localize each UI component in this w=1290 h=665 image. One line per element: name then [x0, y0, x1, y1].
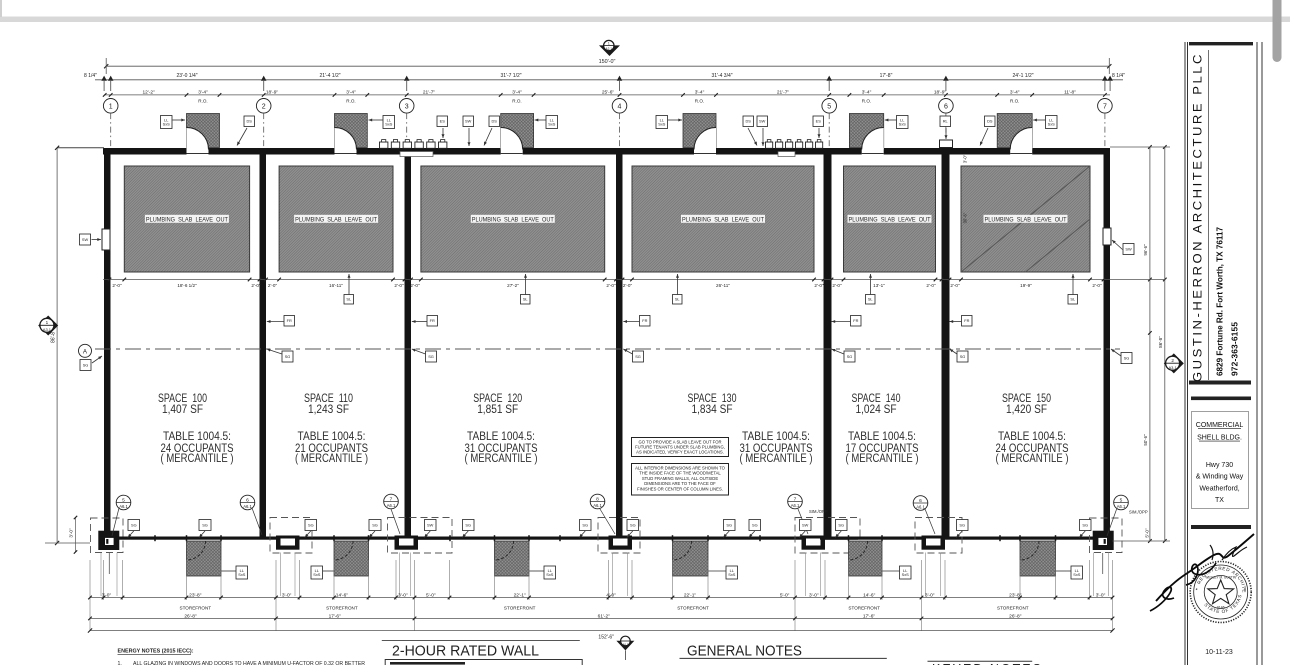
svg-text:FR: FR	[853, 318, 858, 323]
svg-text:SW: SW	[1125, 246, 1132, 251]
svg-text:ALL GLAZING IN WINDOWS AND DOO: ALL GLAZING IN WINDOWS AND DOORS TO HAVE…	[133, 661, 365, 665]
svg-text:3'-0": 3'-0"	[69, 528, 74, 538]
svg-text:DS: DS	[745, 119, 751, 124]
svg-text:R.O.: R.O.	[862, 99, 871, 104]
svg-text:2: 2	[262, 103, 266, 110]
svg-text:FR: FR	[964, 318, 969, 323]
svg-text:TX: TX	[1215, 497, 1224, 504]
svg-text:PLUMBING SLAB LEAVE OUT: PLUMBING SLAB LEAVE OUT	[472, 217, 554, 224]
svg-text:COMMERCIAL: COMMERCIAL	[1196, 422, 1244, 429]
svg-text:SW: SW	[759, 119, 766, 124]
svg-text:WESLEY M. GUSTIN: WESLEY M. GUSTIN	[1205, 576, 1236, 580]
svg-text:SW: SW	[82, 237, 89, 242]
svg-text:SL: SL	[675, 297, 681, 302]
svg-text:5'-0": 5'-0"	[780, 593, 790, 599]
svg-text:PLUMBING SLAB LEAVE OUT: PLUMBING SLAB LEAVE OUT	[682, 217, 764, 224]
svg-text:★: ★	[1243, 588, 1247, 591]
svg-text:11'-8": 11'-8"	[1064, 90, 1076, 96]
svg-text:3'-0": 3'-0"	[963, 154, 968, 163]
svg-text:10-11-23: 10-11-23	[1205, 649, 1233, 656]
svg-text:R.O.: R.O.	[1010, 99, 1019, 104]
svg-text:SL: SL	[523, 297, 529, 302]
svg-text:FR: FR	[642, 318, 647, 323]
svg-text:7: 7	[390, 496, 393, 502]
svg-text:8 1/4": 8 1/4"	[84, 73, 97, 79]
svg-text:GUSTIN-HERRON ARCHITECTURE P: GUSTIN-HERRON ARCHITECTURE PLLC	[1191, 52, 1205, 382]
svg-text:SG: SG	[465, 522, 471, 527]
svg-text:2'-0": 2'-0"	[814, 283, 824, 288]
svg-text:21'-4 1/2": 21'-4 1/2"	[319, 73, 340, 79]
svg-text:( MERCANTILE ): ( MERCANTILE )	[996, 451, 1069, 465]
svg-text:SxS: SxS	[238, 572, 246, 577]
svg-text:5'-0": 5'-0"	[426, 593, 436, 599]
svg-text:3'-4": 3'-4"	[512, 90, 522, 96]
svg-text:30'-6": 30'-6"	[963, 212, 968, 223]
svg-text:Weatherford,: Weatherford,	[1199, 486, 1239, 493]
svg-text:A2.1: A2.1	[606, 47, 613, 51]
svg-text:SxS: SxS	[385, 121, 393, 126]
svg-text:Hwy 730: Hwy 730	[1206, 462, 1233, 469]
svg-text:SG: SG	[83, 362, 89, 367]
svg-text:12'-2": 12'-2"	[142, 90, 155, 96]
svg-text:SG: SG	[635, 354, 641, 359]
svg-text:3'-4": 3'-4"	[695, 90, 705, 96]
svg-text:18'-6 1/2": 18'-6 1/2"	[177, 283, 197, 288]
svg-text:9146: 9146	[1217, 606, 1225, 610]
svg-text:SW: SW	[465, 119, 472, 124]
svg-text:6: 6	[944, 103, 948, 110]
svg-text:31'-4 3/4": 31'-4 3/4"	[711, 73, 732, 79]
svg-text:21'-7": 21'-7"	[423, 90, 436, 96]
svg-text:SG: SG	[959, 522, 965, 527]
svg-text:SxS: SxS	[899, 121, 907, 126]
svg-text:& Winding Way: & Winding Way	[1196, 474, 1244, 481]
svg-text:3'-4": 3'-4"	[198, 90, 208, 96]
svg-text:R.O.: R.O.	[346, 99, 355, 104]
svg-text:1,834 SF: 1,834 SF	[692, 402, 733, 416]
svg-text:2'-0": 2'-0"	[623, 283, 633, 288]
svg-text:SG: SG	[726, 522, 732, 527]
svg-text:( MERCANTILE ): ( MERCANTILE )	[465, 451, 538, 465]
svg-text:DS: DS	[246, 119, 252, 124]
svg-text:( MERCANTILE ): ( MERCANTILE )	[740, 451, 813, 465]
svg-text:27'-2": 27'-2"	[507, 283, 519, 288]
svg-text:A6.1: A6.1	[593, 503, 602, 508]
svg-text:1: 1	[46, 320, 49, 325]
svg-text:21'-7": 21'-7"	[777, 90, 790, 96]
svg-text:5: 5	[122, 497, 125, 503]
svg-text:DS: DS	[491, 119, 497, 124]
svg-text:22'-1": 22'-1"	[514, 593, 527, 599]
svg-text:STOREFRONT: STOREFRONT	[848, 606, 880, 611]
svg-text:6: 6	[919, 498, 922, 504]
svg-text:3'-4": 3'-4"	[346, 90, 356, 96]
svg-text:( MERCANTILE ): ( MERCANTILE )	[295, 451, 368, 465]
svg-text:SG: SG	[630, 522, 636, 527]
svg-text:2: 2	[1171, 358, 1174, 363]
svg-text:PLUMBING SLAB LEAVE OUT: PLUMBING SLAB LEAVE OUT	[985, 217, 1067, 224]
svg-text:A6.1: A6.1	[916, 504, 925, 509]
svg-text:A6.1: A6.1	[622, 642, 629, 646]
svg-text:FR: FR	[430, 318, 435, 323]
svg-text:SIM./OPP: SIM./OPP	[809, 509, 828, 514]
svg-text:4'-0": 4'-0"	[606, 593, 616, 599]
svg-text:18'-9": 18'-9"	[934, 90, 947, 96]
svg-text:A6.1: A6.1	[119, 504, 128, 509]
svg-text:14'-6": 14'-6"	[336, 593, 349, 599]
svg-text:A6.1: A6.1	[1117, 504, 1126, 509]
svg-text:★: ★	[1195, 587, 1199, 590]
svg-text:2'-0": 2'-0"	[268, 283, 278, 288]
svg-text:A6.1: A6.1	[243, 504, 252, 509]
svg-text:SG: SG	[752, 522, 758, 527]
svg-text:3'-4": 3'-4"	[1010, 90, 1020, 96]
svg-text:31'-7 1/2": 31'-7 1/2"	[500, 73, 521, 79]
svg-text:2'-0": 2'-0"	[251, 283, 261, 288]
svg-text:86'-8": 86'-8"	[1158, 336, 1163, 348]
svg-text:2'-0": 2'-0"	[950, 283, 960, 288]
svg-text:A6.1: A6.1	[791, 503, 800, 508]
svg-text:STOREFRONT: STOREFRONT	[180, 606, 212, 611]
svg-text:22'-1": 22'-1"	[684, 593, 697, 599]
svg-text:FR: FR	[287, 318, 292, 323]
svg-text:2'-0": 2'-0"	[926, 283, 936, 288]
svg-text:R.O.: R.O.	[512, 99, 521, 104]
svg-text:RL: RL	[943, 119, 949, 124]
svg-text:50'-6": 50'-6"	[1143, 434, 1148, 446]
svg-text:SL: SL	[346, 297, 352, 302]
svg-text:150'-0": 150'-0"	[599, 59, 616, 65]
svg-text:STOREFRONT: STOREFRONT	[997, 606, 1029, 611]
svg-text:5: 5	[827, 103, 831, 110]
svg-text:3'-0": 3'-0"	[809, 593, 819, 599]
svg-text:1.: 1.	[118, 661, 122, 665]
svg-text:SxS: SxS	[902, 572, 910, 577]
svg-text:23'-0 1/4": 23'-0 1/4"	[176, 73, 197, 79]
svg-text:SG: SG	[202, 522, 208, 527]
svg-text:3: 3	[405, 103, 409, 110]
svg-text:3'-0": 3'-0"	[1096, 593, 1106, 599]
svg-text:3'-0": 3'-0"	[102, 593, 112, 599]
svg-text:ES: ES	[816, 119, 822, 124]
svg-text:ENERGY NOTES (2015 IECC):: ENERGY NOTES (2015 IECC):	[118, 649, 194, 655]
svg-text:1,024 SF: 1,024 SF	[856, 402, 897, 416]
svg-text:61'-2": 61'-2"	[598, 613, 611, 619]
svg-text:( MERCANTILE ): ( MERCANTILE )	[846, 451, 919, 465]
svg-text:2'-0": 2'-0"	[394, 283, 404, 288]
svg-text:SL: SL	[868, 297, 874, 302]
svg-text:PLUMBING SLAB LEAVE OUT: PLUMBING SLAB LEAVE OUT	[849, 217, 931, 224]
svg-text:SxS: SxS	[163, 121, 171, 126]
svg-text:2'-0": 2'-0"	[606, 283, 616, 288]
svg-text:SG: SG	[131, 522, 137, 527]
svg-text:A6.1: A6.1	[387, 503, 396, 508]
svg-text:SxS: SxS	[313, 572, 321, 577]
svg-text:26'-8": 26'-8"	[1009, 613, 1022, 619]
svg-text:SG: SG	[1124, 355, 1130, 360]
svg-text:SW: SW	[802, 522, 809, 527]
svg-text:SxS: SxS	[548, 121, 556, 126]
svg-text:STOREFRONT: STOREFRONT	[504, 606, 536, 611]
svg-text:2-HOUR RATED WALL: 2-HOUR RATED WALL	[392, 644, 539, 660]
svg-text:DS: DS	[987, 119, 993, 124]
svg-text:1,243 SF: 1,243 SF	[308, 402, 349, 416]
svg-text:14'-6": 14'-6"	[863, 593, 876, 599]
svg-text:STOREFRONT: STOREFRONT	[677, 606, 709, 611]
svg-text:96'-6": 96'-6"	[1143, 244, 1148, 256]
svg-text:1,851 SF: 1,851 SF	[477, 402, 518, 416]
svg-text:6829 Fortune Rd. Fort Worth, T: 6829 Fortune Rd. Fort Worth, TX 76117	[1215, 227, 1225, 376]
svg-text:7: 7	[1103, 103, 1107, 110]
svg-text:19'-9": 19'-9"	[1020, 283, 1032, 288]
svg-text:( MERCANTILE ): ( MERCANTILE )	[161, 451, 234, 465]
svg-text:SxS: SxS	[546, 572, 554, 577]
svg-text:R.O.: R.O.	[198, 99, 207, 104]
svg-text:24'-1 1/2": 24'-1 1/2"	[1012, 73, 1033, 79]
svg-text:18'-9": 18'-9"	[266, 90, 279, 96]
svg-text:1,407 SF: 1,407 SF	[162, 402, 203, 416]
svg-text:SG: SG	[428, 354, 434, 359]
svg-text:SHELL BLDG.: SHELL BLDG.	[1197, 435, 1242, 442]
svg-text:6: 6	[246, 497, 249, 503]
svg-text:A3.1: A3.1	[43, 327, 52, 332]
svg-text:3'-0": 3'-0"	[282, 593, 292, 599]
svg-text:3'-0": 3'-0"	[925, 593, 935, 599]
svg-text:17'-8": 17'-8"	[880, 73, 893, 79]
svg-text:SxS: SxS	[1073, 572, 1081, 577]
svg-text:SG: SG	[372, 522, 378, 527]
svg-text:5: 5	[1120, 497, 1123, 503]
svg-text:ES: ES	[440, 119, 446, 124]
svg-text:3'-4": 3'-4"	[862, 90, 872, 96]
svg-text:SG: SG	[285, 354, 291, 359]
svg-text:FINISHES OR CENTER OF COLUMN L: FINISHES OR CENTER OF COLUMN LINES.	[637, 486, 723, 491]
svg-text:26'-11": 26'-11"	[716, 283, 730, 288]
svg-text:7: 7	[794, 496, 797, 502]
svg-text:SG: SG	[838, 522, 844, 527]
svg-text:1,420 SF: 1,420 SF	[1006, 402, 1047, 416]
svg-text:23'-8": 23'-8"	[1009, 593, 1022, 599]
svg-text:PLUMBING SLAB LEAVE OUT: PLUMBING SLAB LEAVE OUT	[146, 217, 228, 224]
svg-text:SL: SL	[1070, 297, 1076, 302]
svg-text:152'-6": 152'-6"	[598, 634, 614, 640]
svg-text:SG: SG	[582, 522, 588, 527]
svg-text:3'-0": 3'-0"	[398, 593, 408, 599]
svg-text:A3.1: A3.1	[1168, 365, 1177, 370]
svg-text:SW: SW	[427, 522, 434, 527]
svg-text:8: 8	[596, 496, 599, 502]
svg-text:2'-0": 2'-0"	[832, 283, 842, 288]
svg-text:17'-6": 17'-6"	[329, 613, 342, 619]
svg-text:R.O.: R.O.	[695, 99, 704, 104]
svg-text:23'-8": 23'-8"	[189, 593, 202, 599]
svg-text:8 1/4": 8 1/4"	[1112, 73, 1125, 79]
svg-text:16'-11": 16'-11"	[329, 283, 343, 288]
svg-text:SG: SG	[847, 354, 853, 359]
svg-text:1: 1	[608, 42, 610, 46]
svg-text:972-363-6155: 972-363-6155	[1230, 322, 1240, 376]
svg-text:STOREFRONT: STOREFRONT	[326, 606, 358, 611]
svg-text:GENERAL NOTES: GENERAL NOTES	[687, 644, 802, 660]
svg-text:SxS: SxS	[1048, 121, 1056, 126]
svg-text:13'-1": 13'-1"	[873, 283, 885, 288]
svg-text:SG: SG	[960, 354, 966, 359]
svg-text:25'-6": 25'-6"	[602, 90, 615, 96]
svg-text:SxS: SxS	[658, 121, 666, 126]
svg-text:AS INDICATED, VERIFY EXACT LOC: AS INDICATED, VERIFY EXACT LOCATIONS.	[636, 450, 724, 455]
svg-text:17'-6": 17'-6"	[863, 613, 876, 619]
svg-text:5'-0": 5'-0"	[1145, 528, 1150, 538]
svg-text:26'-8": 26'-8"	[184, 613, 197, 619]
svg-text:2'-0": 2'-0"	[1092, 283, 1102, 288]
svg-text:SG: SG	[1082, 522, 1088, 527]
svg-text:2'-0": 2'-0"	[410, 283, 420, 288]
svg-text:4: 4	[618, 103, 622, 110]
svg-text:2'-0": 2'-0"	[112, 283, 122, 288]
svg-text:1: 1	[109, 103, 113, 110]
svg-text:PLUMBING SLAB LEAVE OUT: PLUMBING SLAB LEAVE OUT	[295, 217, 377, 224]
svg-text:SG: SG	[308, 522, 314, 527]
svg-text:SIM./OPP: SIM./OPP	[1129, 510, 1148, 515]
svg-text:SxS: SxS	[728, 572, 736, 577]
